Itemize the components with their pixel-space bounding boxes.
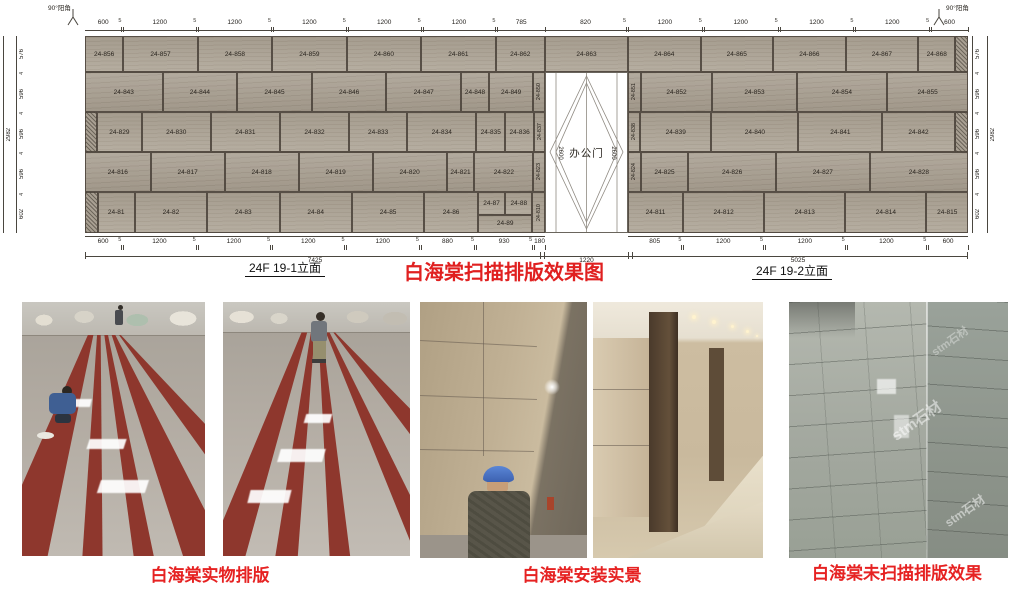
work-light (544, 379, 560, 395)
corner-return-hatch (85, 192, 98, 233)
dim-label: 1200 (780, 19, 854, 26)
stone-panel: 24-810 (532, 192, 545, 233)
corner-return-hatch (85, 112, 97, 152)
stone-panel: 24-841 (798, 112, 882, 152)
panel-id-label: 24-84 (307, 209, 324, 216)
dim-label: 180 (534, 238, 545, 245)
light-reflection (86, 439, 126, 449)
specular-highlight (877, 379, 897, 394)
dim-label: 5 (842, 237, 845, 244)
panel-id-label: 24-846 (339, 89, 359, 96)
panel-row: 24-86424-86524-86624-86724-868 (628, 36, 968, 72)
panel-id-label: 24-834 (432, 129, 452, 136)
panel-row: 24-82424-82524-82624-82724-828 (628, 152, 968, 192)
stone-panel: 24-819 (299, 152, 373, 192)
corner-marker-left: 90°阳角 (48, 2, 71, 12)
panel-id-label: 24-845 (264, 89, 284, 96)
panel-id-label: 24-814 (876, 209, 896, 216)
stone-panel: 24-815 (926, 192, 968, 233)
panel-id-label: 24-868 (927, 51, 947, 58)
panel-id-label: 24-841 (830, 129, 850, 136)
dim-segment: 2982 (988, 36, 998, 233)
worker-pants (313, 341, 326, 360)
dim-label: 600 (85, 238, 121, 245)
dim-label: 602 (19, 209, 26, 219)
panel-id-label: 24-865 (727, 51, 747, 58)
stone-panel: 24-868 (918, 36, 955, 72)
worker-shirt (311, 321, 327, 342)
panel-id-label: 24-829 (109, 129, 129, 136)
panel-id-label: 24-867 (872, 51, 892, 58)
caption-layout: 白海棠实物排版 (110, 561, 310, 586)
vert-dim-chain-right: 5764596459645964602 (972, 36, 984, 233)
dim-label: 1200 (198, 238, 270, 245)
stone-panel: 24-82 (135, 192, 207, 233)
dim-label: 1200 (272, 238, 344, 245)
panel-id-label: 24-828 (909, 169, 929, 176)
panel-id-label: 24-811 (646, 209, 666, 216)
panel-id-label: 24-88 (511, 200, 528, 207)
dim-label: 596 (19, 89, 26, 99)
dim-label: 5 (926, 18, 929, 25)
dim-segment: 602 (973, 195, 984, 233)
stone-panel: 24-85 (352, 192, 424, 233)
dim-segment: 785 (497, 18, 545, 30)
stone-panel: 24-854 (797, 72, 888, 112)
caption-install: 白海棠安装实景 (482, 561, 682, 586)
left-wall (593, 338, 649, 517)
warehouse-background (22, 302, 205, 336)
stone-panel: 24-831 (211, 112, 280, 152)
corner-symbol-icon (66, 9, 80, 27)
dim-label: 5 (193, 237, 196, 244)
panel-id-label: 24-851 (631, 83, 637, 100)
panel-id-label: 24-855 (917, 89, 937, 96)
height-total-left: 2982 (3, 36, 14, 233)
panel-id-label: 24-89 (497, 220, 514, 227)
dim-label: 1200 (198, 19, 271, 26)
dim-label: 596 (975, 169, 982, 179)
dim-label: 1200 (348, 19, 421, 26)
dim-label: 596 (975, 129, 982, 139)
office-door: 2600 2600 办公门 (545, 72, 628, 233)
stone-panel: 24-858 (198, 36, 272, 72)
wall-joint (593, 389, 649, 390)
door-label: 办公门 (546, 145, 627, 160)
panel-id-label: 24-844 (190, 89, 210, 96)
stone-panel: 24-835 (476, 112, 505, 152)
panel-id-label: 24-822 (494, 169, 514, 176)
stone-panel: 24-837 (534, 112, 545, 152)
elevation-label-left: 24F 19-1立面 (205, 259, 365, 276)
dim-label: 1200 (123, 19, 196, 26)
stone-panel: 24-812 (683, 192, 764, 233)
panel-id-label: 24-833 (368, 129, 388, 136)
panel-id-label: 24-838 (631, 123, 637, 140)
stone-panel: 24-863 (545, 36, 628, 72)
ceiling-light (712, 320, 716, 324)
panel-group-top: 24-8724-88 (478, 192, 533, 215)
dim-label: 5 (492, 18, 495, 25)
stone-panel: 24-834 (407, 112, 476, 152)
dim-label: 5 (529, 237, 532, 244)
panel-id-label: 24-842 (908, 129, 928, 136)
dim-label: 1200 (273, 19, 346, 26)
dim-label: 5 (623, 18, 626, 25)
dim-label: 1200 (423, 19, 496, 26)
stone-panel: 24-814 (845, 192, 926, 233)
elevation-left-panels: 24-85624-85724-85824-85924-86024-86124-8… (85, 36, 545, 233)
panel-id-label: 24-830 (166, 129, 186, 136)
page-title: 白海棠扫描排版效果图 (398, 256, 610, 285)
panel-id-label: 24-853 (744, 89, 764, 96)
stone-panel: 24-825 (641, 152, 689, 192)
panel-id-label: 24-849 (501, 89, 521, 96)
dim-segment: 596 (973, 155, 984, 192)
panel-id-label: 24-810 (536, 204, 542, 221)
stone-panel: 24-856 (85, 36, 123, 72)
panel-id-label: 24-815 (937, 209, 957, 216)
photo-finished-hallway (593, 302, 763, 558)
dim-label: 5 (471, 237, 474, 244)
dim-segment: 600 (931, 18, 968, 30)
dim-label: 596 (975, 89, 982, 99)
dim-label: 1200 (765, 238, 845, 245)
dim-segment: 1200 (423, 18, 496, 30)
stone-panel: 24-852 (641, 72, 713, 112)
stone-panel: 24-848 (461, 72, 489, 112)
stone-panel: 24-839 (640, 112, 711, 152)
stone-panel: 24-829 (97, 112, 142, 152)
dim-label: 1200 (683, 238, 763, 245)
dim-label: 2982 (990, 128, 997, 141)
stone-panel: 24-836 (505, 112, 534, 152)
stone-panel: 24-842 (882, 112, 954, 152)
dim-label: 1200 (704, 19, 778, 26)
dim-label: 576 (975, 49, 982, 59)
dim-label: 5 (923, 237, 926, 244)
panel-group-bottom: 24-89 (478, 215, 533, 233)
panel-id-label: 24-85 (380, 209, 397, 216)
ceiling-light (731, 325, 734, 328)
photo-stone-corner: stm石材 stm石材 stm石材 (789, 302, 1008, 558)
stone-panel: 24-847 (386, 72, 461, 112)
panel-id-label: 24-856 (94, 51, 114, 58)
top-dim-chain-left: 60051200512005120051200512005785 (85, 18, 545, 31)
worker-shoes (312, 359, 326, 363)
worker-jacket (468, 491, 530, 558)
stone-panel: 24-830 (142, 112, 211, 152)
dim-label: 930 (476, 238, 532, 245)
site-object (547, 497, 554, 510)
panel-id-label: 24-86 (443, 209, 460, 216)
stone-panel: 24-86 (424, 192, 478, 233)
stone-panel: 24-861 (421, 36, 495, 72)
page: 90°阳角 90°阳角 6005120051200512005120051200… (0, 0, 1010, 591)
dim-label: 2982 (6, 128, 13, 141)
panel-id-label: 24-82 (163, 209, 180, 216)
white-cloth (37, 432, 54, 439)
dark-pillar (709, 348, 724, 481)
dim-segment: 1200 (704, 18, 778, 30)
dim-label: 5 (678, 237, 681, 244)
stone-panel: 24-84 (280, 192, 352, 233)
panel-id-label: 24-857 (150, 51, 170, 58)
dark-door-panel (649, 312, 678, 532)
dim-segment: 1200 (855, 18, 929, 30)
stone-panel: 24-822 (474, 152, 533, 192)
corner-edge (926, 302, 928, 558)
dim-segment: 1200 (123, 18, 196, 30)
worker-head (316, 312, 325, 321)
stone-panel: 24-832 (280, 112, 349, 152)
panel-id-label: 24-826 (722, 169, 742, 176)
stone-panel: 24-833 (349, 112, 407, 152)
dim-segment: 1200 (273, 18, 346, 30)
panel-id-label: 24-860 (374, 51, 394, 58)
stone-panel: 24-862 (496, 36, 545, 72)
stone-panel: 24-844 (163, 72, 238, 112)
photo-install-site (420, 302, 587, 558)
dim-label: 5 (699, 18, 702, 25)
dim-label: 1200 (123, 238, 195, 245)
dim-label: 5 (416, 237, 419, 244)
panel-id-label: 24-852 (666, 89, 686, 96)
panel-id-label: 24-812 (714, 209, 734, 216)
dim-label: 5 (118, 18, 121, 25)
panel-id-label: 24-848 (465, 89, 485, 96)
dim-label: 5 (775, 18, 778, 25)
panel-id-label: 24-862 (510, 51, 530, 58)
dim-label: 5 (760, 237, 763, 244)
stone-panel: 24-820 (373, 152, 447, 192)
stone-panel: 24-865 (701, 36, 774, 72)
panel-id-label: 24-817 (177, 169, 197, 176)
stone-panel: 24-857 (123, 36, 197, 72)
dim-label: 600 (931, 19, 968, 26)
stone-panel: 24-867 (846, 36, 919, 72)
panel-id-label: 24-87 (483, 200, 500, 207)
dim-label: 576 (19, 49, 26, 59)
dim-segment: 576 (17, 36, 28, 72)
stone-panel: 24-817 (151, 152, 225, 192)
dim-label: 600 (928, 238, 968, 245)
wall-joint (483, 302, 484, 456)
dim-label: 5 (268, 18, 271, 25)
panel-id-label: 24-83 (235, 209, 252, 216)
background-person (115, 310, 123, 325)
panel-row: 24-85124-85224-85324-85424-855 (628, 72, 968, 112)
light-reflection (248, 490, 292, 503)
stone-panel: 24-864 (628, 36, 701, 72)
dim-segment: 596 (973, 115, 984, 152)
stone-panel: 24-89 (478, 215, 533, 233)
door-column: 24-863 2600 2600 办公门 (545, 36, 628, 233)
stone-panel: 24-849 (489, 72, 533, 112)
dim-label: 5 (267, 237, 270, 244)
panel-id-label: 24-864 (654, 51, 674, 58)
dim-segment: 602 (17, 195, 28, 233)
panel-id-label: 24-827 (813, 169, 833, 176)
stone-panel: 24-838 (628, 112, 640, 152)
photo-factory-layout-1 (22, 302, 205, 556)
panel-row: 24-81124-81224-81324-81424-815 (628, 192, 968, 233)
panel-id-label: 24-866 (799, 51, 819, 58)
stone-panel: 24-845 (237, 72, 312, 112)
panel-row: 24-82924-83024-83124-83224-83324-83424-8… (85, 112, 545, 152)
panel-id-label: 24-813 (795, 209, 815, 216)
panel-row: 24-8124-8224-8324-8424-8524-8624-8724-88… (85, 192, 545, 233)
dim-segment: 596 (17, 155, 28, 192)
dim-label: 805 (628, 238, 681, 245)
panel-id-label: 24-818 (251, 169, 271, 176)
door-top-panel-row: 24-863 (545, 36, 628, 72)
stone-panel-group: 24-8724-8824-89 (478, 192, 533, 233)
light-reflection (97, 480, 149, 493)
dim-label: 596 (19, 169, 26, 179)
dim-label: 600 (85, 19, 121, 26)
dim-label: 5 (341, 237, 344, 244)
stone-panel: 24-843 (85, 72, 163, 112)
height-total-right: 2982 (987, 36, 998, 233)
stone-panel: 24-866 (773, 36, 846, 72)
stone-panel: 24-83 (207, 192, 279, 233)
panel-row: 24-83824-83924-84024-84124-842 (628, 112, 968, 152)
worker-legs (55, 414, 71, 423)
dim-segment: 576 (973, 36, 984, 72)
stone-panel: 24-851 (628, 72, 641, 112)
dim-segment: 2982 (4, 36, 14, 233)
stone-panel: 24-826 (688, 152, 775, 192)
dim-segment: 1200 (780, 18, 854, 30)
stone-panel: 24-855 (887, 72, 968, 112)
dim-label: 5 (193, 18, 196, 25)
stone-panel: 24-860 (347, 36, 421, 72)
stone-panel: 24-813 (764, 192, 845, 233)
panel-id-label: 24-839 (666, 129, 686, 136)
dim-segment: 596 (17, 115, 28, 152)
panel-row: 24-85624-85724-85824-85924-86024-86124-8… (85, 36, 545, 72)
panel-id-label: 24-840 (745, 129, 765, 136)
stone-panel: 24-840 (711, 112, 798, 152)
stone-panel: 24-821 (447, 152, 475, 192)
panel-id-label: 24-861 (448, 51, 468, 58)
panel-id-label: 24-816 (108, 169, 128, 176)
panel-id-label: 24-859 (299, 51, 319, 58)
dim-segment: 1200 (198, 18, 271, 30)
light-reflection (277, 449, 326, 462)
stone-panel: 24-823 (533, 152, 545, 192)
dim-segment: 1200 (628, 18, 702, 30)
photo-factory-layout-2 (223, 302, 410, 556)
top-dim-chain-door: 8205 (545, 18, 628, 31)
panel-id-label: 24-854 (832, 89, 852, 96)
dim-label: 785 (497, 19, 545, 26)
stone-panel: 24-827 (776, 152, 870, 192)
corner-label-right: 90°阳角 (946, 5, 969, 12)
dim-label: 5 (343, 18, 346, 25)
corner-marker-right: 90°阳角 (946, 2, 969, 12)
stone-panel: 24-818 (225, 152, 299, 192)
dim-label: 602 (975, 209, 982, 219)
stone-panel: 24-816 (85, 152, 151, 192)
dim-label: 5 (850, 18, 853, 25)
stone-panel: 24-850 (533, 72, 545, 112)
panel-id-label: 24-81 (108, 209, 125, 216)
ceiling-light (692, 315, 696, 319)
dim-label: 1200 (855, 19, 929, 26)
worker-body (49, 393, 76, 414)
panel-row: 24-84324-84424-84524-84624-84724-84824-8… (85, 72, 545, 112)
dim-label: 596 (19, 129, 26, 139)
stone-panel: 24-81 (98, 192, 135, 233)
stone-panel: 24-859 (272, 36, 346, 72)
panel-id-label: 24-850 (536, 83, 542, 100)
dim-label: 1200 (346, 238, 418, 245)
stone-panel: 24-853 (712, 72, 796, 112)
panel-id-label: 24-836 (509, 129, 529, 136)
corner-return-hatch (955, 36, 968, 72)
dim-label: 5 (418, 18, 421, 25)
panel-id-label: 24-821 (450, 169, 470, 176)
panel-id-label: 24-825 (654, 169, 674, 176)
dim-label: 820 (545, 19, 626, 26)
panel-id-label: 24-823 (536, 163, 542, 180)
wall-joint (593, 445, 649, 446)
panel-id-label: 24-837 (537, 123, 543, 140)
width-total-right: 5025 (628, 247, 968, 257)
panel-id-label: 24-824 (631, 163, 637, 180)
panel-id-label: 24-831 (235, 129, 255, 136)
dim-label: 880 (421, 238, 474, 245)
background-person-head (118, 305, 123, 310)
stone-panel: 24-824 (628, 152, 641, 192)
dim-segment: 820 (545, 18, 626, 30)
stone-panel: 24-811 (628, 192, 683, 233)
panel-id-label: 24-835 (481, 129, 501, 136)
light-reflection (304, 414, 333, 423)
stone-panel: 24-846 (312, 72, 387, 112)
panel-id-label: 24-843 (114, 89, 134, 96)
panel-id-label: 24-819 (325, 169, 345, 176)
panel-row: 24-81624-81724-81824-81924-82024-82124-8… (85, 152, 545, 192)
dim-segment: 596 (17, 75, 28, 112)
stone-panel: 24-88 (505, 192, 532, 215)
panel-id-label: 24-847 (414, 89, 434, 96)
vert-dim-chain-left: 5764596459645964602 (16, 36, 28, 233)
top-dim-chain-right: 12005120051200512005600 (628, 18, 968, 31)
dim-segment: 1200 (348, 18, 421, 30)
dim-label: 1200 (628, 19, 702, 26)
dim-label: 1200 (847, 238, 927, 245)
dim-segment: 600 (85, 18, 121, 30)
dim-segment: 596 (973, 75, 984, 112)
dim-label: 5 (118, 237, 121, 244)
stone-panel: 24-87 (478, 192, 505, 215)
panel-id-label: 24-832 (304, 129, 324, 136)
stone-panel: 24-828 (870, 152, 968, 192)
top-shadow (789, 302, 855, 338)
panel-id-label: 24-820 (399, 169, 419, 176)
caption-unscanned: 白海棠未扫描排版效果 (797, 559, 997, 584)
elevation-label-right: 24F 19-2立面 (712, 262, 872, 279)
corner-return-hatch (955, 112, 968, 152)
panel-id-label: 24-858 (225, 51, 245, 58)
panel-id-label: 24-863 (576, 51, 596, 58)
elevation-right-panels: 24-86424-86524-86624-86724-86824-85124-8… (628, 36, 968, 233)
